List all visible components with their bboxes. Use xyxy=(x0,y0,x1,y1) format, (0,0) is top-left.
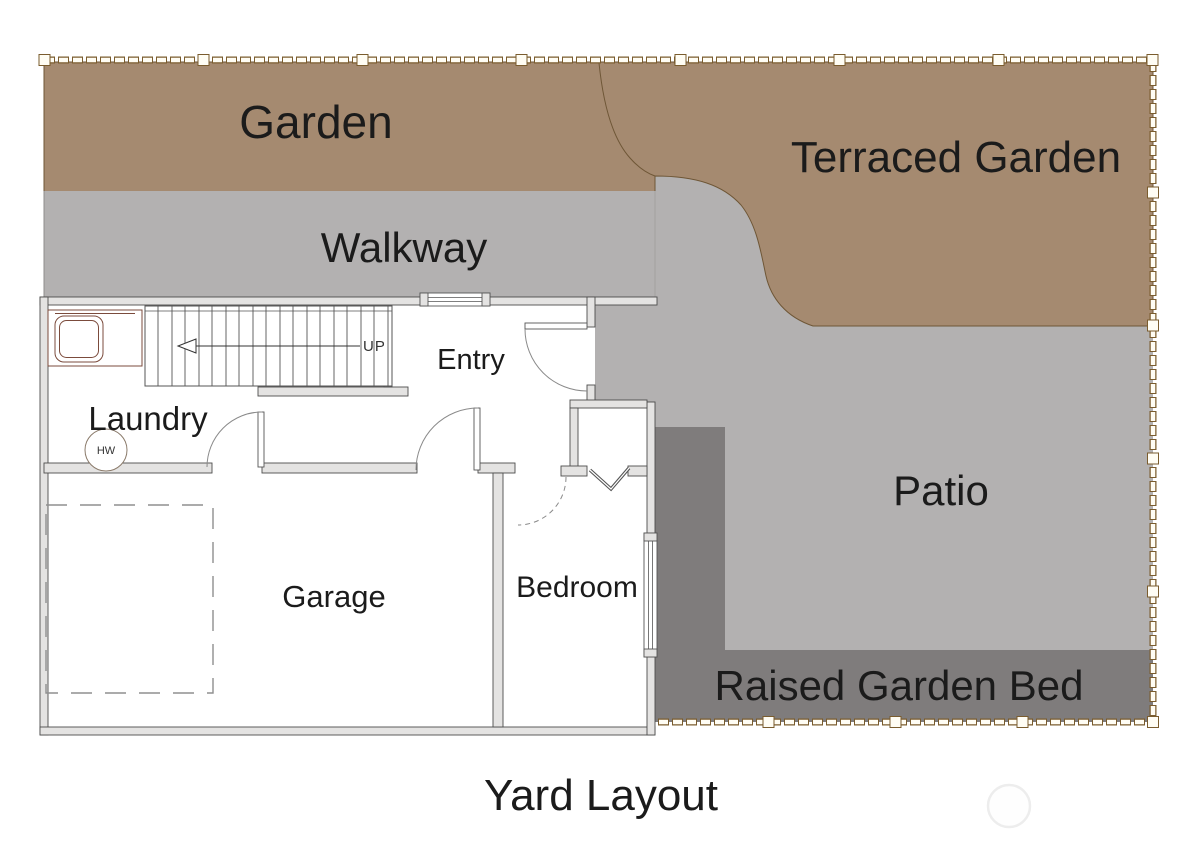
window-top-wall xyxy=(420,293,490,306)
wall-closet-top xyxy=(570,400,647,408)
wall-garage-bedroom-divider xyxy=(493,473,503,727)
floorplan-svg: UP HW Garden Ter xyxy=(0,0,1201,858)
laundry-label: Laundry xyxy=(88,400,208,437)
walkway-label: Walkway xyxy=(321,224,487,271)
bedroom-label: Bedroom xyxy=(516,571,638,604)
garage-label: Garage xyxy=(282,579,385,614)
staircase: UP xyxy=(145,306,392,386)
yard-layout-plan: UP HW Garden Ter xyxy=(0,0,1201,858)
wall-entry-right-upper xyxy=(587,297,595,327)
raised-garden-bed-label: Raised Garden Bed xyxy=(715,662,1084,709)
water-heater-label: HW xyxy=(97,445,116,457)
wall-left xyxy=(40,297,48,735)
wall-bottom xyxy=(40,727,655,735)
entry-label: Entry xyxy=(437,344,505,376)
hall-door-leaf xyxy=(474,408,480,470)
watermark-circle xyxy=(988,785,1030,827)
page-title: Yard Layout xyxy=(484,771,718,820)
wall-garage-top-left xyxy=(44,463,212,473)
stair-up-label: UP xyxy=(363,338,386,355)
terraced-garden-label: Terraced Garden xyxy=(791,133,1121,182)
front-door-leaf xyxy=(525,323,587,329)
garden-label: Garden xyxy=(239,96,392,148)
wall-top xyxy=(40,297,657,305)
wall-closet-stub-left xyxy=(561,466,587,476)
patio-label: Patio xyxy=(893,467,989,514)
wall-garage-top-right xyxy=(478,463,515,473)
wall-hallway xyxy=(258,387,408,396)
wall-closet-left xyxy=(570,408,578,468)
wall-closet-stub-right xyxy=(628,466,647,476)
wall-garage-top-mid xyxy=(262,463,417,473)
window-bedroom-wall xyxy=(644,533,657,657)
laundry-door-leaf xyxy=(258,412,264,467)
